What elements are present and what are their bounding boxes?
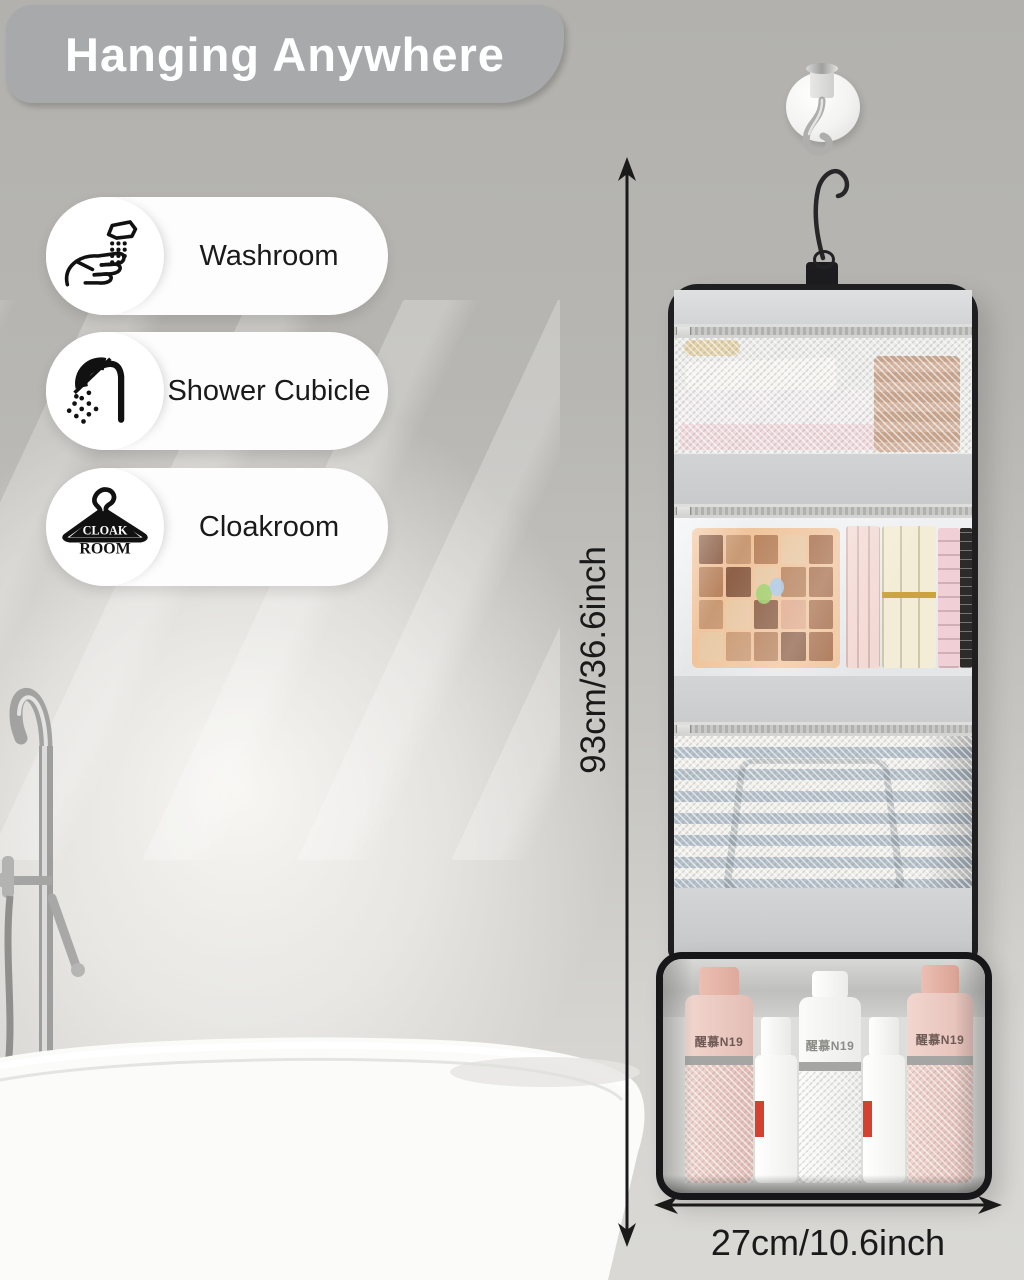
bathtub	[0, 1000, 660, 1280]
mascara-pack	[960, 528, 972, 668]
spray-bottle-right	[863, 1017, 905, 1185]
feature-label: Shower Cubicle	[164, 375, 388, 408]
washroom-hands-faucet-icon	[46, 197, 164, 315]
sponge-item	[684, 340, 740, 356]
washroom-icon-graphic	[62, 213, 148, 299]
bathtub-graphic	[0, 1000, 660, 1280]
white-bottle-center: 醒慕N19	[799, 971, 861, 1183]
zipper-pull-icon	[676, 324, 691, 338]
pink-packet	[680, 424, 885, 450]
scene: Hanging Anywhere Washroom	[0, 0, 1024, 1280]
top-mesh-pocket	[674, 338, 972, 454]
bottle-label: 醒慕N19	[799, 1037, 861, 1054]
toiletry-bag	[668, 284, 978, 960]
bag-top-flap	[674, 290, 972, 324]
bottle-mesh-band	[799, 1062, 861, 1183]
cream-tubes	[882, 526, 936, 668]
height-dimension-label: 93cm/36.6inch	[574, 510, 614, 810]
feature-badge-cloakroom: CLOAK ROOM Cloakroom	[46, 468, 388, 586]
width-dimension-arrow	[652, 1190, 1004, 1220]
feature-label: Cloakroom	[164, 511, 388, 544]
pouch-side-shade	[955, 959, 985, 1193]
feature-badge-shower: Shower Cubicle	[46, 332, 388, 450]
tan-pouch-item	[874, 356, 960, 452]
bottle-cap	[812, 971, 848, 999]
zipper-pull-icon	[676, 722, 691, 736]
bag-divider-panel	[674, 676, 972, 722]
spray-cap	[761, 1017, 791, 1057]
zipper-pull-icon	[676, 504, 691, 518]
bag-divider-panel	[674, 454, 972, 504]
bottle-body: 醒慕N19	[799, 997, 861, 1183]
bottle-body: 醒慕N19	[685, 995, 753, 1183]
bottle-cap	[699, 967, 739, 997]
coat-hanger-icon: CLOAK ROOM	[46, 468, 164, 586]
pouch-side-shade	[663, 959, 693, 1193]
feature-badge-washroom: Washroom	[46, 197, 388, 315]
cloakroom-icon-graphic: CLOAK ROOM	[60, 482, 150, 572]
eyeshadow-palette	[692, 528, 840, 668]
pink-cosmetic-sticks	[938, 528, 960, 668]
spray-red-accent	[863, 1101, 872, 1137]
height-dimension-arrow	[610, 155, 646, 1250]
makeup-pencils	[846, 526, 880, 668]
feature-label: Washroom	[164, 240, 388, 273]
bottle-label: 醒慕N19	[685, 1033, 753, 1050]
bottle-mesh-band	[685, 1056, 753, 1183]
shower-head-icon	[46, 332, 164, 450]
bag-bottom-panel	[674, 888, 972, 954]
width-dimension-label: 27cm/10.6inch	[652, 1222, 1004, 1264]
room-text: ROOM	[79, 540, 130, 557]
spray-red-accent	[755, 1101, 764, 1137]
pocket-shadow	[926, 736, 972, 888]
clear-cosmetics-pocket	[674, 518, 972, 676]
spray-cap	[869, 1017, 899, 1057]
striped-towel-handle	[722, 758, 907, 888]
pink-bottle-left: 醒慕N19	[685, 967, 753, 1183]
cloak-text: CLOAK	[83, 524, 128, 538]
palette-cartoon-decor	[770, 578, 784, 596]
banner-title: Hanging Anywhere	[65, 27, 505, 82]
zipper-top	[674, 324, 972, 338]
towel-mesh-pocket	[674, 736, 972, 888]
zipper-middle	[674, 504, 972, 518]
zipper-lower	[674, 722, 972, 736]
suction-cup-cap	[806, 63, 838, 74]
banner: Hanging Anywhere	[6, 5, 564, 103]
shower-icon-graphic	[62, 348, 148, 434]
white-packet	[676, 390, 872, 428]
spray-bottle-left	[755, 1017, 797, 1185]
bottom-pouch: 醒慕N19 醒慕N19 醒慕N19	[656, 952, 992, 1200]
bottle-cap	[921, 965, 959, 995]
